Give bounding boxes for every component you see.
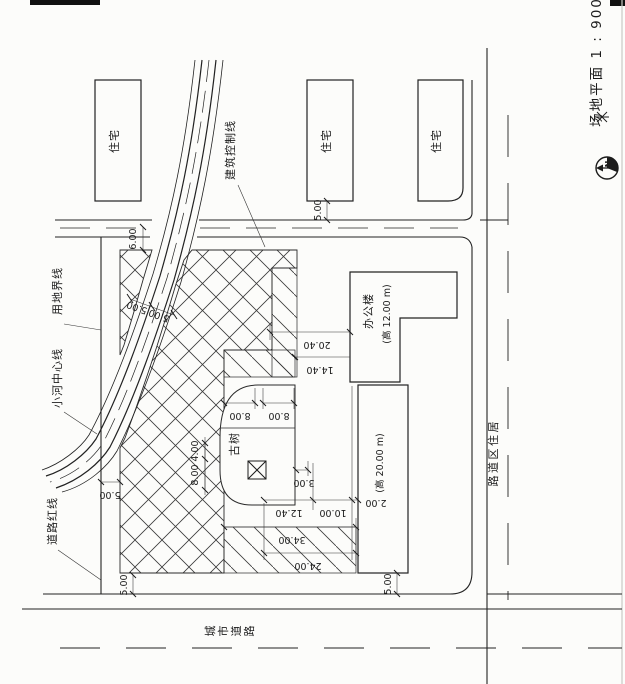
dim-west-5-00: 5.00 (99, 489, 120, 500)
ancient-tree-label: 古树 (227, 432, 241, 456)
city-road-label: 城市道路 (204, 626, 256, 637)
residential-buildings (95, 80, 463, 201)
building-control-line-label: 建筑控制线 (223, 120, 237, 180)
site-boundary-label: 用地界线 (50, 267, 64, 315)
hatch-band-mid (224, 350, 295, 377)
road-label-char: 城 (204, 626, 217, 637)
road-label-char: 区 (487, 449, 500, 460)
dim-2-00: 2.00 (365, 497, 386, 508)
road-label-char: 市 (216, 626, 230, 637)
dim-sw-5-00: 5.00 (119, 574, 130, 595)
office-name-label: 办公楼 (361, 293, 375, 329)
top-road (55, 214, 508, 247)
north-label: N (604, 161, 613, 168)
dim-8-00-c: 8.00 (190, 464, 201, 485)
dim-12-40: 12.40 (275, 507, 302, 518)
river-centerline-label: 小河中心线 (50, 348, 64, 408)
road-label-char: 道 (486, 462, 500, 473)
hatch-band-south (224, 527, 356, 573)
office-height-label: (高 12.00 m) (381, 284, 393, 343)
dim-3-00: 3.00 (293, 477, 314, 488)
residential-label-2: 住宅 (319, 129, 333, 153)
road-label-char: 住 (486, 435, 500, 446)
residential-label-1: 住宅 (107, 129, 121, 153)
road-label-char: 路 (487, 476, 500, 487)
dim-10-00: 10.00 (319, 507, 346, 518)
dim-20-40: 20.40 (303, 339, 330, 350)
road-label-char: 道 (229, 626, 243, 637)
bottom-road (22, 594, 622, 648)
site-plan-drawing: 场地平面 1 : 900 N 住宅 住宅 住宅 办公楼 (高 12.00 m) … (0, 0, 625, 684)
dim-8-00-b: 8.00 (268, 410, 289, 421)
dim-14-40: 14.40 (306, 364, 333, 375)
drawing-title: 场地平面 1 : 900 (589, 0, 605, 127)
road-label-char: 路 (243, 626, 256, 637)
dim-4-00: 4.00 (190, 440, 201, 461)
dim-top-5-00: 5.00 (313, 199, 324, 220)
dim-34-00: 34.00 (278, 534, 305, 545)
dim-se-5-00: 5.00 (383, 573, 394, 594)
tall-building-height-label: (高 20.00 m) (374, 433, 386, 492)
site-plan-svg: 场地平面 1 : 900 N 住宅 住宅 住宅 办公楼 (高 12.00 m) … (0, 0, 625, 684)
road-label-char: 居 (487, 422, 500, 433)
road-red-line-label: 道路红线 (45, 497, 59, 545)
dim-8-00-a: 8.00 (229, 410, 250, 421)
dim-river-5-00-b: 5.00 (147, 306, 171, 324)
dim-6-00: 6.00 (128, 228, 139, 249)
dim-24-00: 24.00 (294, 560, 321, 571)
residential-label-3: 住宅 (429, 129, 443, 153)
residential-road-label: 居住区道路 (486, 422, 500, 487)
